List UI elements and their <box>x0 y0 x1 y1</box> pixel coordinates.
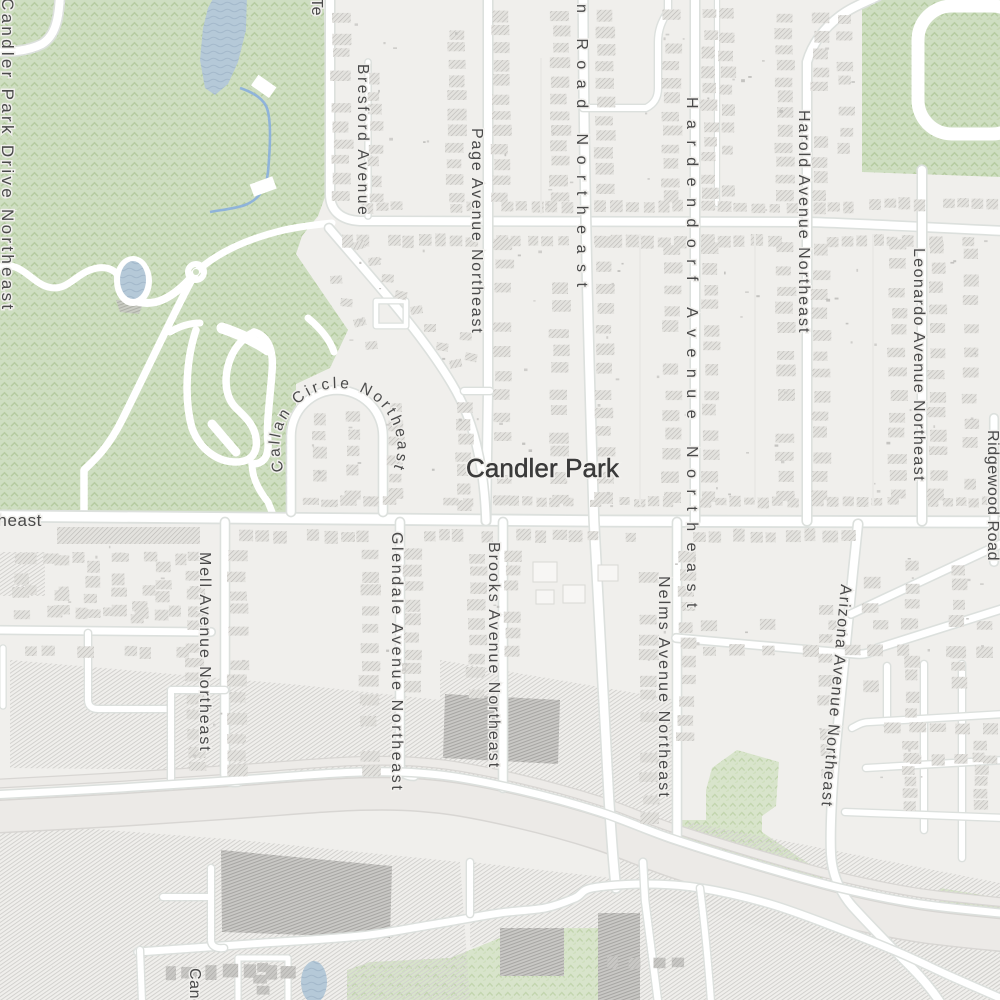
svg-text:Hardendorf Avenue Northeast: Hardendorf Avenue Northeast <box>683 97 700 619</box>
svg-text:Candler Park: Candler Park <box>466 453 620 483</box>
svg-text:Brooks Avenue Northeast: Brooks Avenue Northeast <box>485 542 502 769</box>
svg-text:Nelms Avenue Northeast: Nelms Avenue Northeast <box>655 576 672 799</box>
svg-text:Ridgewood Road: Ridgewood Road <box>984 430 1000 561</box>
svg-text:McLendon Avenue Northeast: McLendon Avenue Northeast <box>0 511 42 530</box>
svg-text:Glendale Avenue Northeast: Glendale Avenue Northeast <box>388 532 405 792</box>
svg-text:Leonardo Avenue Northeast: Leonardo Avenue Northeast <box>910 248 927 482</box>
svg-text:Te: Te <box>308 0 325 16</box>
svg-text:Harold Avenue Northeast: Harold Avenue Northeast <box>795 110 812 334</box>
svg-text:n Road Northeast: n Road Northeast <box>573 4 590 297</box>
svg-text:Candler: Candler <box>186 968 203 1000</box>
svg-text:Bresford Avenue: Bresford Avenue <box>354 64 371 217</box>
svg-text:Candler Park Drive Northeast: Candler Park Drive Northeast <box>0 0 17 312</box>
svg-text:Mell Avenue Northeast: Mell Avenue Northeast <box>196 552 213 753</box>
svg-text:Page Avenue Northeast: Page Avenue Northeast <box>468 128 485 335</box>
